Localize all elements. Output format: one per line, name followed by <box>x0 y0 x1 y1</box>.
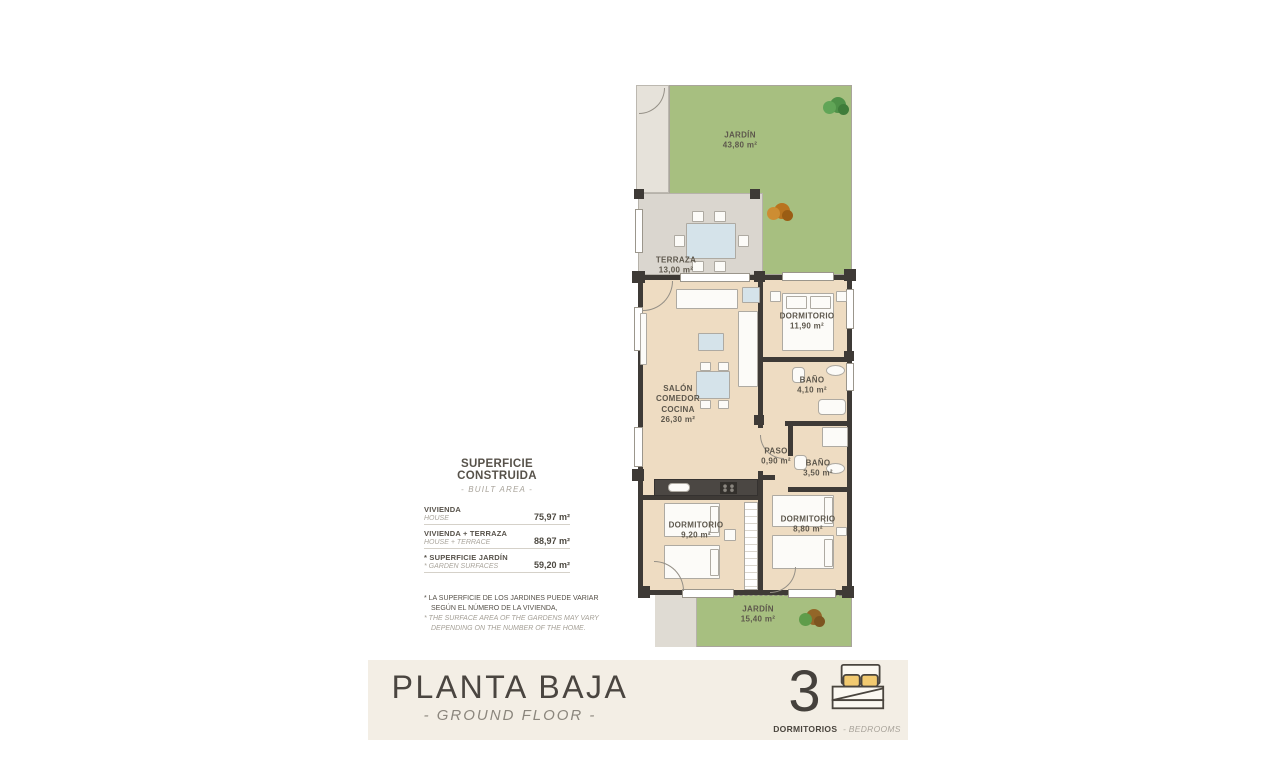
table-row: * SUPERFICIE JARDÍN * GARDEN SURFACES 59… <box>424 549 570 573</box>
side-table <box>742 287 760 303</box>
chair <box>674 235 685 247</box>
surface-table-title: SUPERFICIE CONSTRUIDA <box>424 458 570 482</box>
floor-title: PLANTA BAJA <box>370 669 650 706</box>
pillar <box>634 189 644 199</box>
wall <box>785 421 852 426</box>
chaise-sofa <box>738 311 758 387</box>
wall <box>763 475 775 480</box>
shower <box>822 427 848 447</box>
room-name: COMEDOR <box>656 395 700 405</box>
table-row: VIVIENDA HOUSE 75,97 m² <box>424 501 570 525</box>
pillow <box>824 539 833 567</box>
window <box>782 272 834 281</box>
floor-title-block: PLANTA BAJA - GROUND FLOOR - <box>370 669 650 724</box>
surface-table: SUPERFICIE CONSTRUIDA - BUILT AREA - VIV… <box>424 458 570 573</box>
room-label-jardin-top: JARDÍN 43,80 m² <box>723 131 757 152</box>
wall <box>758 471 763 595</box>
bed-icon <box>828 664 886 716</box>
pillow <box>786 296 807 309</box>
nightstand <box>836 291 847 302</box>
row-value: 59,20 m² <box>534 560 570 570</box>
patio-strip <box>655 596 697 646</box>
pillar <box>638 586 650 598</box>
surface-table-subtitle: - BUILT AREA - <box>424 485 570 494</box>
room-area: 9,20 m² <box>669 531 724 541</box>
terrace-dining-table <box>686 223 736 259</box>
bathtub <box>818 399 846 415</box>
footnote-en-line2: DEPENDING ON THE NUMBER OF THE HOME. <box>424 624 639 634</box>
table-row: VIVIENDA + TERRAZA HOUSE + TERRACE 88,97… <box>424 525 570 549</box>
room-name: DORMITORIO <box>780 312 835 322</box>
chair <box>738 235 749 247</box>
pillar <box>750 189 760 199</box>
room-label-dormitorio-3: DORMITORIO 8,80 m² <box>781 515 836 536</box>
room-area: 0,90 m² <box>761 457 791 467</box>
room-label-dormitorio-principal: DORMITORIO 11,90 m² <box>780 312 835 333</box>
room-name: TERRAZA <box>656 256 696 266</box>
floorplan: JARDÍN 43,80 m² TERRAZA 13,00 m² SALÓN C… <box>630 83 860 661</box>
wall <box>788 487 852 492</box>
room-area: 15,40 m² <box>741 615 775 625</box>
row-labels: * SUPERFICIE JARDÍN * GARDEN SURFACES <box>424 553 508 570</box>
bedrooms-count: 3 <box>788 664 820 721</box>
room-area: 11,90 m² <box>780 322 835 332</box>
room-name: BAÑO <box>803 459 833 469</box>
coffee-table <box>698 333 724 351</box>
room-area: 26,30 m² <box>656 415 700 425</box>
pillar <box>844 269 856 281</box>
gardens-footnote: * LA SUPERFICIE DE LOS JARDINES PUEDE VA… <box>424 594 639 635</box>
bedrooms-label-en: - BEDROOMS <box>843 724 901 734</box>
room-name: BAÑO <box>797 376 827 386</box>
wardrobe <box>744 502 758 590</box>
chair <box>714 261 726 272</box>
chair <box>700 362 711 371</box>
room-area: 4,10 m² <box>797 386 827 396</box>
row-label-es: VIVIENDA <box>424 505 461 514</box>
pillar <box>754 415 764 425</box>
nightstand <box>724 529 736 541</box>
bedrooms-label-es: DORMITORIOS <box>773 724 837 734</box>
bedrooms-row: 3 <box>773 664 901 721</box>
room-label-bano-1: BAÑO 4,10 m² <box>797 376 827 397</box>
stove-hob <box>720 482 737 494</box>
window <box>635 209 643 253</box>
room-area: 43,80 m² <box>723 141 757 151</box>
window <box>682 589 734 598</box>
footnote-es-line2: SEGÚN EL NÚMERO DE LA VIVIENDA, <box>424 604 639 614</box>
row-label-en: HOUSE <box>424 515 461 522</box>
room-label-paso: PASO 0,90 m² <box>761 447 791 468</box>
dining-table <box>696 371 730 399</box>
room-name: JARDÍN <box>723 131 757 141</box>
row-label-es: * SUPERFICIE JARDÍN <box>424 553 508 562</box>
window <box>846 289 854 329</box>
room-label-dormitorio-2: DORMITORIO 9,20 m² <box>669 521 724 542</box>
window <box>846 363 854 391</box>
room-label-terraza: TERRAZA 13,00 m² <box>656 256 696 277</box>
pillow <box>810 296 831 309</box>
chair <box>714 211 726 222</box>
room-name: DORMITORIO <box>781 515 836 525</box>
pillar <box>754 271 765 282</box>
room-area: 8,80 m² <box>781 525 836 535</box>
chair <box>692 211 704 222</box>
pillar <box>842 586 854 598</box>
footer-band: PLANTA BAJA - GROUND FLOOR - 3 DORMITORI… <box>368 660 908 740</box>
room-name: PASO <box>761 447 791 457</box>
row-labels: VIVIENDA HOUSE <box>424 505 461 522</box>
bedrooms-block: 3 DORMITORIOS - BEDROOMS <box>773 664 901 734</box>
row-label-es: VIVIENDA + TERRAZA <box>424 529 507 538</box>
row-value: 75,97 m² <box>534 512 570 522</box>
room-label-jardin-bottom: JARDÍN 15,40 m² <box>741 605 775 626</box>
room-label-bano-2: BAÑO 3,50 m² <box>803 459 833 480</box>
chair <box>718 400 729 409</box>
footnote-en-line1: * THE SURFACE AREA OF THE GARDENS MAY VA… <box>424 614 639 624</box>
room-name: JARDÍN <box>741 605 775 615</box>
pillar <box>632 469 644 481</box>
nightstand <box>770 291 781 302</box>
row-labels: VIVIENDA + TERRAZA HOUSE + TERRACE <box>424 529 507 546</box>
pillow <box>710 549 719 576</box>
window <box>634 427 643 467</box>
sofa <box>676 289 738 309</box>
row-label-en: * GARDEN SURFACES <box>424 563 508 570</box>
tree-icon <box>806 609 822 625</box>
tv-unit <box>640 313 647 365</box>
room-name: COCINA <box>656 405 700 415</box>
tree-icon <box>830 97 846 113</box>
room-name: DORMITORIO <box>669 521 724 531</box>
tree-icon <box>774 203 790 219</box>
floor-subtitle: - GROUND FLOOR - <box>370 707 650 724</box>
nightstand <box>836 527 847 536</box>
washbasin <box>826 365 845 376</box>
room-area: 13,00 m² <box>656 266 696 276</box>
bedrooms-label: DORMITORIOS - BEDROOMS <box>773 724 901 734</box>
footnote-es-line1: * LA SUPERFICIE DE LOS JARDINES PUEDE VA… <box>424 594 639 604</box>
room-name: SALÓN <box>656 384 700 394</box>
room-area: 3,50 m² <box>803 469 833 479</box>
row-label-en: HOUSE + TERRACE <box>424 539 507 546</box>
window <box>788 589 836 598</box>
room-label-salon: SALÓN COMEDOR COCINA 26,30 m² <box>656 384 700 426</box>
row-value: 88,97 m² <box>534 536 570 546</box>
chair <box>700 400 711 409</box>
pillar <box>844 351 854 361</box>
kitchen-sink <box>668 483 690 492</box>
chair <box>718 362 729 371</box>
wall <box>763 357 852 362</box>
